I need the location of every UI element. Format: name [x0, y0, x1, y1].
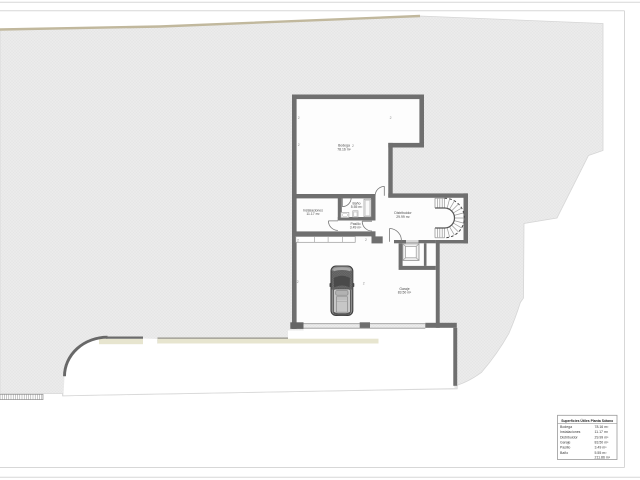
svg-text:2: 2 [390, 116, 392, 120]
svg-text:2: 2 [297, 280, 299, 284]
svg-text:5.55 m²: 5.55 m² [351, 205, 363, 209]
svg-text:2: 2 [352, 144, 354, 148]
svg-text:11.17 m²: 11.17 m² [595, 430, 609, 434]
svg-text:Baño: Baño [560, 451, 568, 455]
svg-text:11.17 m²: 11.17 m² [306, 212, 320, 216]
svg-text:29.99 m²: 29.99 m² [595, 435, 610, 439]
svg-text:Superficies Útiles Planta Sóta: Superficies Útiles Planta Sótano [561, 418, 613, 423]
svg-text:29.99 m²: 29.99 m² [396, 215, 410, 219]
svg-text:2: 2 [365, 238, 367, 242]
svg-text:Pasillo: Pasillo [560, 446, 570, 450]
svg-text:5.55 m²: 5.55 m² [595, 451, 608, 455]
svg-text:Garaje: Garaje [560, 441, 571, 445]
svg-text:83.50 m²: 83.50 m² [398, 291, 412, 295]
svg-text:Instalaciones: Instalaciones [560, 430, 581, 434]
svg-text:Bodega: Bodega [560, 425, 572, 429]
svg-text:3.49 m²: 3.49 m² [595, 446, 608, 450]
svg-text:78.16 m²: 78.16 m² [595, 425, 610, 429]
svg-text:211.86 m²: 211.86 m² [595, 455, 611, 459]
svg-text:3.49 m²: 3.49 m² [350, 226, 362, 230]
svg-text:Distribuidor: Distribuidor [560, 435, 579, 439]
svg-text:78.16 m²: 78.16 m² [337, 147, 351, 151]
svg-text:2: 2 [297, 239, 299, 243]
svg-text:2: 2 [363, 282, 365, 286]
svg-text:83.50 m²: 83.50 m² [595, 441, 610, 445]
svg-text:2: 2 [298, 116, 300, 120]
svg-text:2: 2 [298, 143, 300, 147]
